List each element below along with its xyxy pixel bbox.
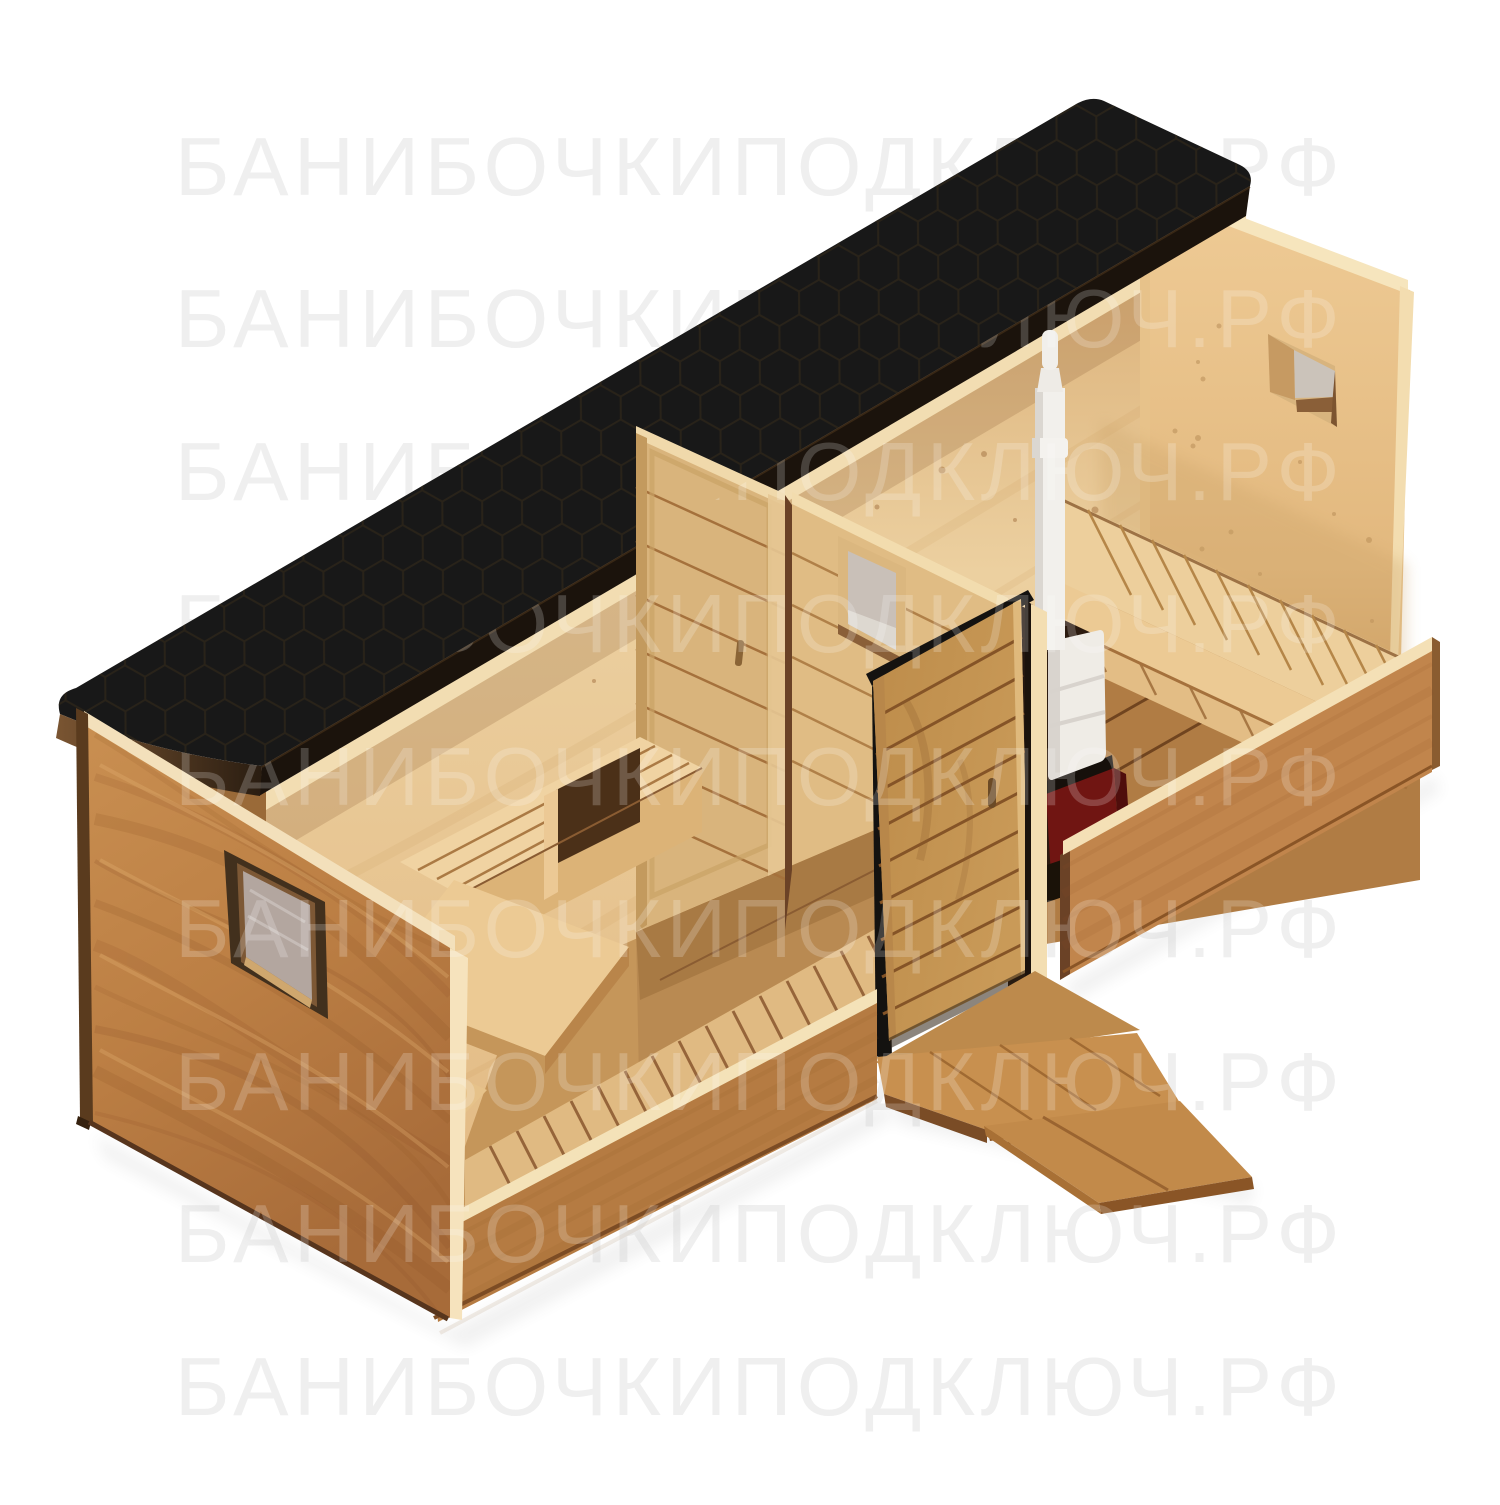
svg-text:БАНИБОЧКИПОДКЛЮЧ.РФ: БАНИБОЧКИПОДКЛЮЧ.РФ — [175, 1035, 1345, 1128]
svg-text:БАНИБОЧКИПОДКЛЮЧ.РФ: БАНИБОЧКИПОДКЛЮЧ.РФ — [175, 882, 1345, 975]
svg-text:БАНИБОЧКИПОДКЛЮЧ.РФ: БАНИБОЧКИПОДКЛЮЧ.РФ — [175, 1340, 1345, 1433]
svg-text:БАНИБОЧКИПОДКЛЮЧ.РФ: БАНИБОЧКИПОДКЛЮЧ.РФ — [175, 1187, 1345, 1280]
svg-text:БАНИБОЧКИПОДКЛЮЧ.РФ: БАНИБОЧКИПОДКЛЮЧ.РФ — [175, 730, 1345, 823]
